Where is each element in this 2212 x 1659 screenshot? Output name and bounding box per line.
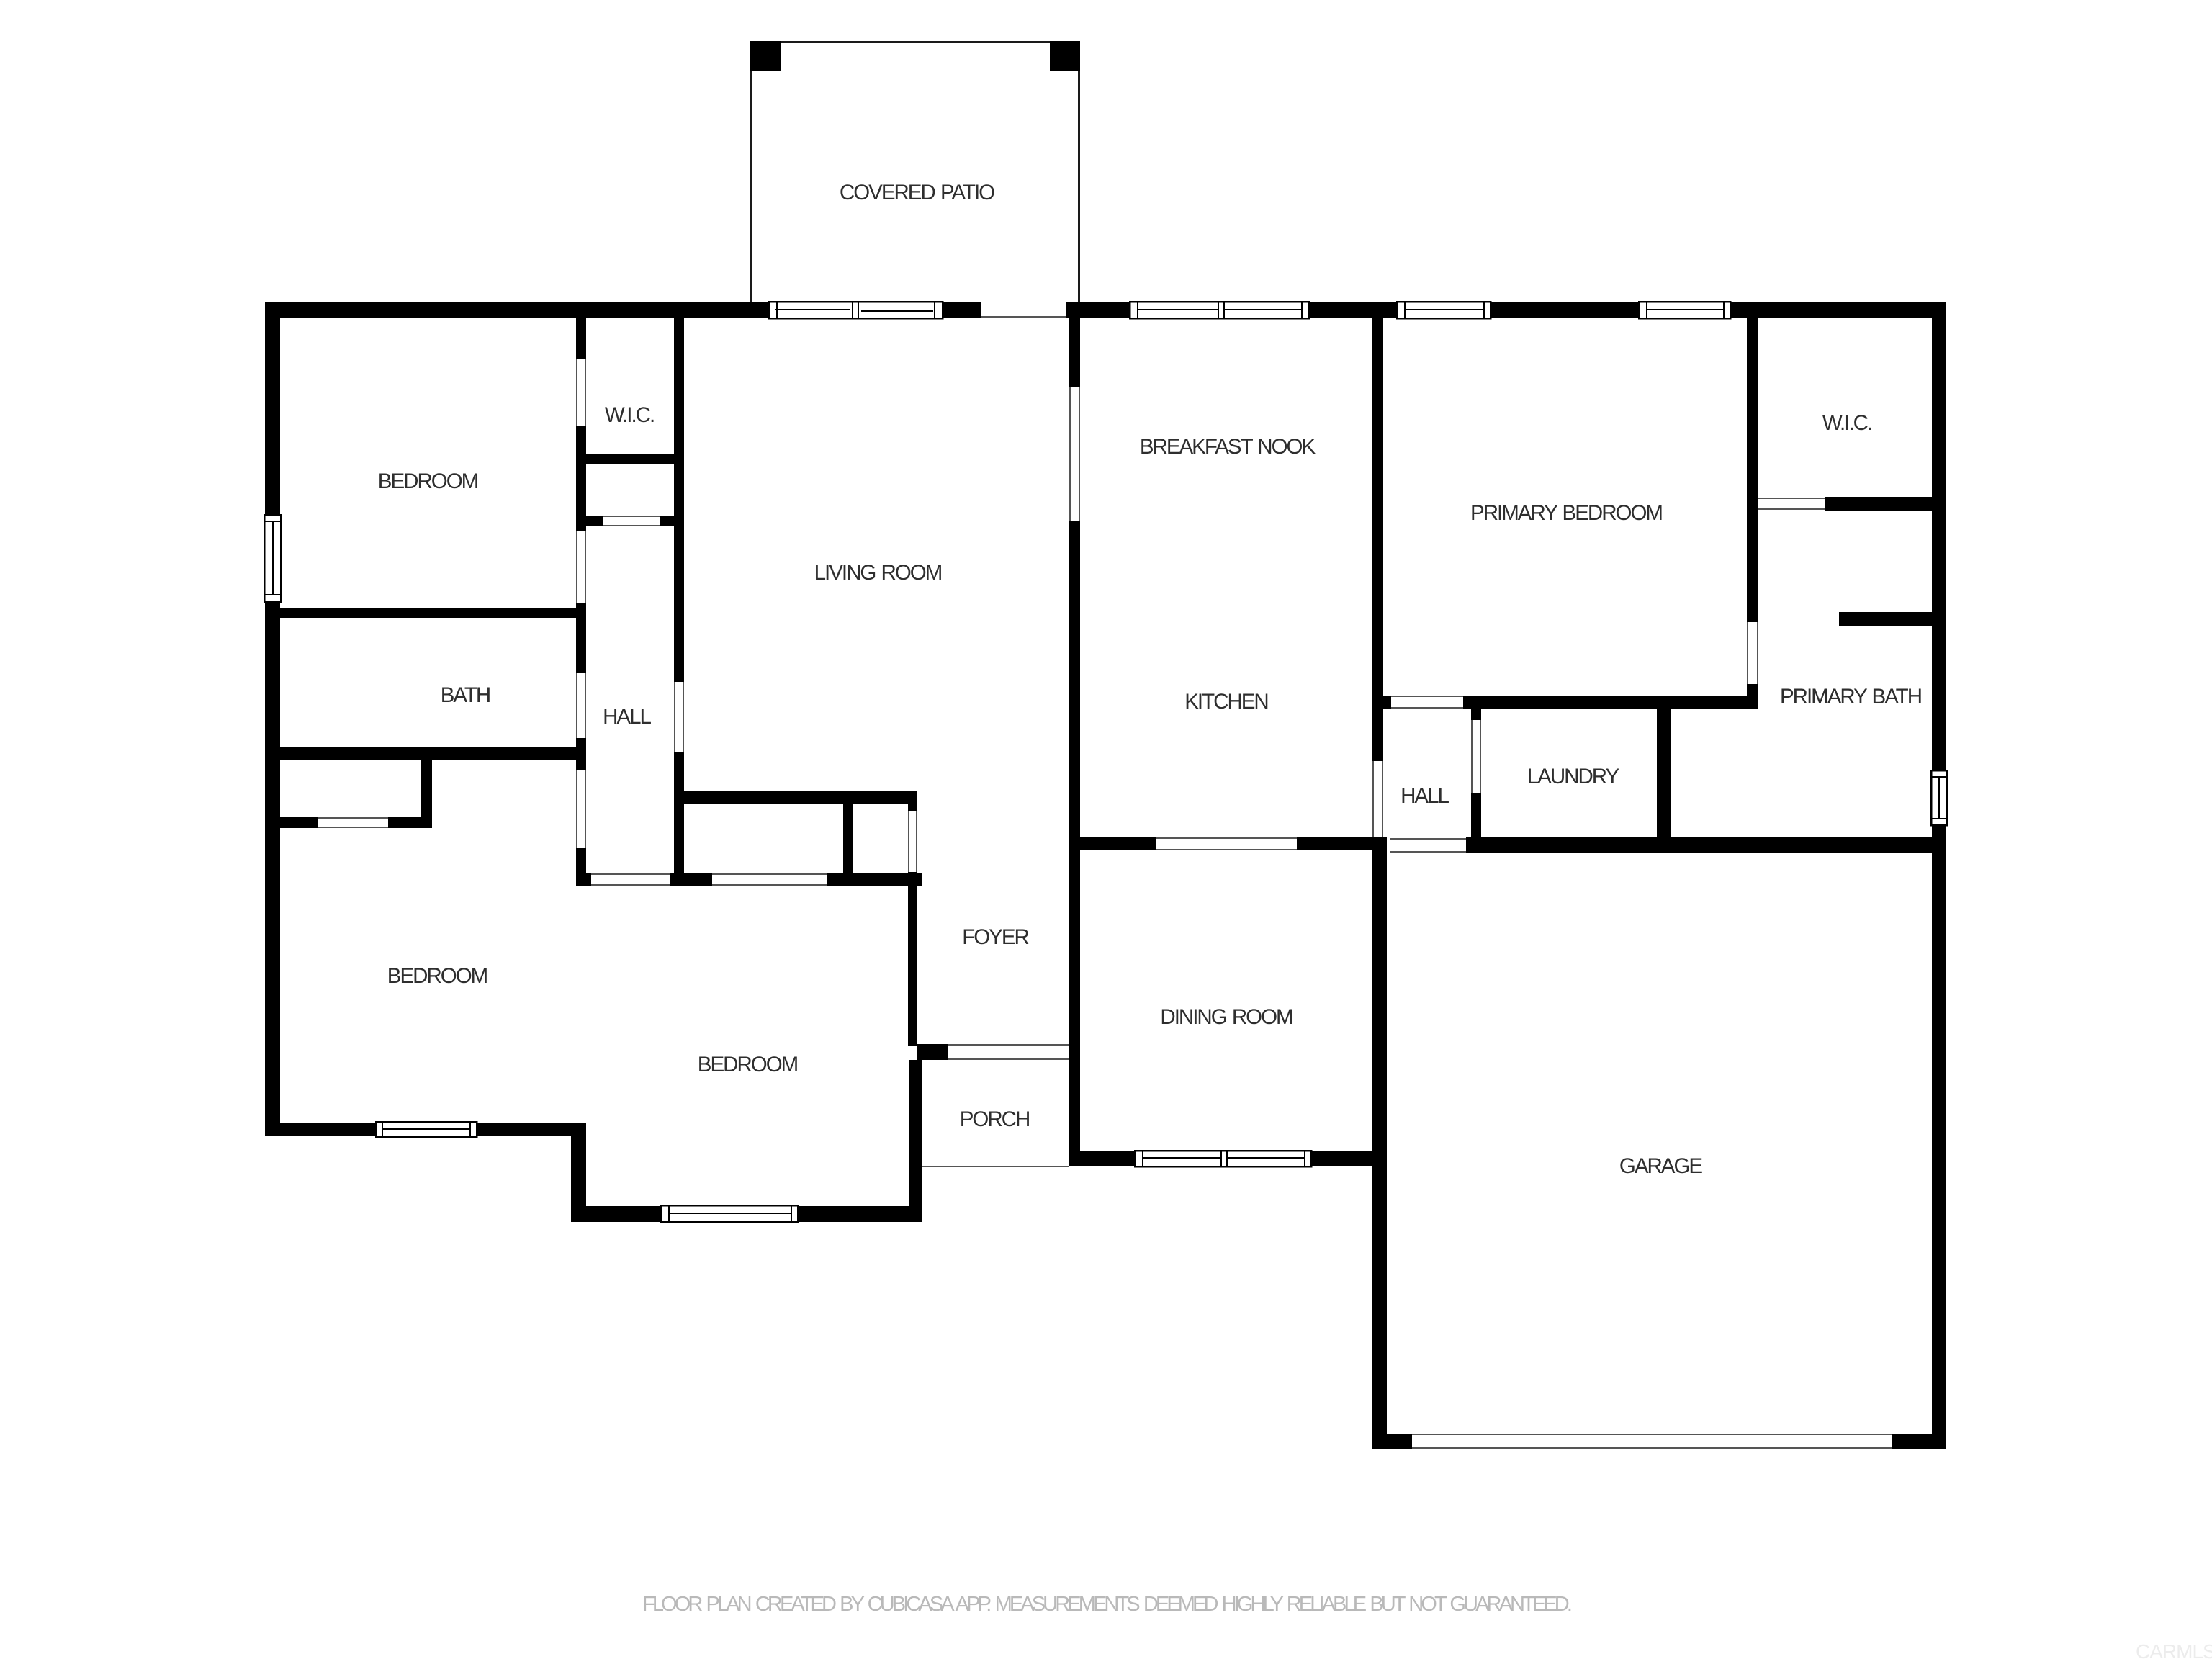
- svg-text:HALL: HALL: [1401, 784, 1449, 808]
- svg-text:BEDROOM: BEDROOM: [698, 1053, 798, 1076]
- svg-text:PRIMARY BEDROOM: PRIMARY BEDROOM: [1470, 501, 1662, 525]
- svg-text:HALL: HALL: [603, 705, 651, 729]
- svg-text:PORCH: PORCH: [960, 1107, 1030, 1131]
- svg-text:COVERED PATIO: COVERED PATIO: [840, 181, 994, 204]
- svg-text:LAUNDRY: LAUNDRY: [1527, 765, 1620, 788]
- svg-text:BEDROOM: BEDROOM: [378, 469, 478, 493]
- svg-text:PRIMARY BATH: PRIMARY BATH: [1780, 685, 1921, 709]
- svg-text:W.I.C.: W.I.C.: [1822, 411, 1871, 435]
- svg-text:BEDROOM: BEDROOM: [387, 964, 487, 988]
- svg-text:DINING ROOM: DINING ROOM: [1160, 1005, 1292, 1029]
- svg-text:LIVING ROOM: LIVING ROOM: [814, 561, 942, 585]
- svg-text:W.I.C.: W.I.C.: [605, 403, 654, 427]
- svg-text:BATH: BATH: [441, 683, 490, 707]
- svg-text:BREAKFAST NOOK: BREAKFAST NOOK: [1140, 435, 1316, 459]
- svg-text:FOYER: FOYER: [962, 925, 1028, 949]
- svg-text:KITCHEN: KITCHEN: [1184, 690, 1267, 714]
- svg-text:FLOOR PLAN CREATED BY CUBICASA: FLOOR PLAN CREATED BY CUBICASA APP. MEAS…: [642, 1593, 1571, 1616]
- svg-text:CARMLS, INC: CARMLS, INC: [2136, 1640, 2212, 1659]
- svg-text:GARAGE: GARAGE: [1619, 1154, 1703, 1178]
